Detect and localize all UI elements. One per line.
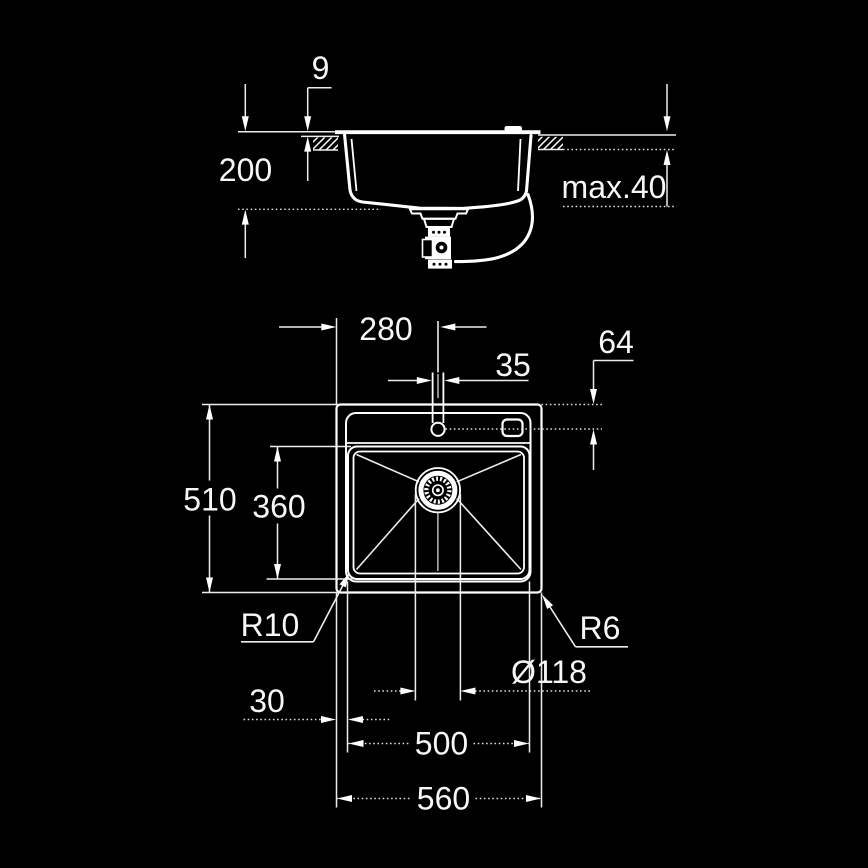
dim-faucet-hole-label: 35 [495,347,531,383]
bowl-section-outline [345,134,532,208]
remote-knob-section [505,126,523,132]
arrowhead-left-icon [349,740,364,747]
section-view: 9 200 max.40 [219,50,677,269]
counter-hatch-right [538,137,563,150]
arrowhead-left-icon [348,716,363,723]
base-dot [439,263,442,266]
dim-counter-thickness: max.40 [562,84,677,207]
bowl-inner-wall-left [352,139,357,191]
dim-edge-to-bowl-label: 30 [249,683,285,719]
trap-bore-center [440,246,444,250]
dim-faucet-offset-x: 280 [279,311,487,405]
arrowhead-up-icon [304,137,311,152]
drain-strainer [416,468,460,512]
bowl-slope-line [457,455,521,482]
arrowhead-down-icon [304,116,311,131]
faucet-hole-circle [431,423,444,436]
counter-hatch-left [313,138,338,151]
dim-bowl-depth-label: 200 [219,152,272,188]
arrowhead-up-icon [664,150,671,165]
collar-dot [443,231,446,234]
arrowhead-up-icon [274,447,281,462]
arrowhead-right-icon [321,716,336,723]
dim-faucet-offset-x-label: 280 [359,311,412,347]
arrowhead-down-icon [590,389,597,404]
arrowhead-down-icon [242,116,249,131]
bowl-slope-line [357,499,420,570]
dim-counter-thickness-label: max.40 [562,169,667,205]
collar-dot [438,231,441,234]
arrowhead-down-icon [664,116,671,131]
dim-faucet-hole-diameter: 35 [388,347,531,384]
bowl-slope-line [357,455,420,482]
bowl-corner-radius-label: R10 [241,607,300,643]
dim-overall-width: 560 [337,593,542,817]
trap-outlet-tab [423,240,433,258]
bowl-slope-line [457,499,521,570]
dim-bowl-front-to-back-label: 360 [252,489,305,525]
drain-center-dot [436,488,440,492]
arrowhead-left-icon [337,795,352,802]
drawing-svg: 9 200 max.40 [0,0,868,868]
bowl-inner-wall-right [518,139,521,191]
arrowhead-right-icon [514,740,529,747]
dim-drain-diameter: Ø118 [374,494,593,701]
dim-drain-diameter-label: Ø118 [511,654,587,690]
arrowhead-right-icon [321,324,336,331]
leader-outer-corner-radius: R6 [539,593,628,647]
arrowhead-down-icon [274,564,281,579]
dim-bowl-width-label: 500 [415,726,468,762]
dim-rim-height-label: 9 [312,50,330,86]
faucet-hole [431,321,444,436]
base-dot [445,263,448,266]
dim-rim-height: 9 [304,50,331,181]
arrowhead-left-icon [444,377,459,384]
sink-outer-edge [337,405,542,593]
arrowhead-right-icon [526,795,541,802]
collar-dot [432,231,435,234]
outer-corner-radius-label: R6 [580,610,621,646]
dim-faucet-offset-y-label: 64 [598,324,634,360]
dim-bowl-depth: 200 [219,84,272,258]
drain-neck-section [424,219,454,227]
arrowhead-left-icon [460,688,475,695]
arrowhead-left-icon [440,324,455,331]
dim-overall-depth-label: 510 [183,482,236,518]
arrowhead-right-icon [417,377,432,384]
sink-technical-drawing: 9 200 max.40 [0,0,868,868]
dim-bowl-width: 500 [348,582,530,762]
drain-flange-section [410,209,468,219]
arrowhead-right-icon [400,688,415,695]
remote-knob-plan [503,420,523,437]
arrowhead-up-icon [206,405,213,420]
arrowhead-up-icon [590,430,597,445]
dim-faucet-offset-y: 64 [590,324,634,470]
plan-view: 280 35 64 510 [183,311,633,817]
arrowhead-up-icon [242,210,249,225]
arrowhead-down-icon [206,578,213,593]
dim-overall-width-label: 560 [417,781,470,817]
base-dot [433,263,436,266]
dim-edge-to-bowl: 30 [244,683,392,723]
